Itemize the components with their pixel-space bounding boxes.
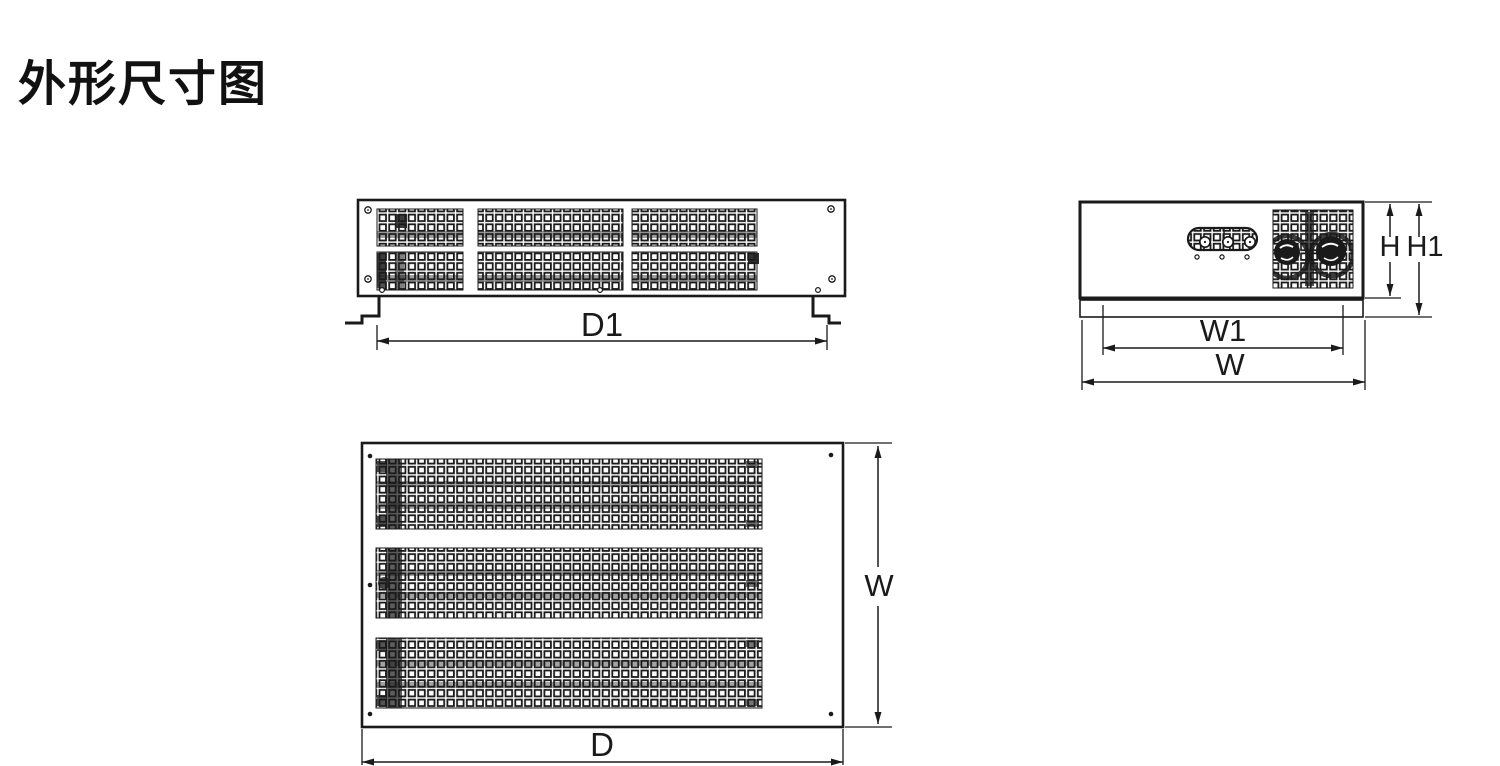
grille-panel <box>377 252 463 290</box>
grille-strip <box>376 459 762 529</box>
dim-label-w-side: W <box>1215 347 1245 382</box>
top-view: W D <box>362 443 894 765</box>
fan-rotor-icon <box>1316 236 1346 266</box>
grille-panel <box>478 209 623 246</box>
grille-panel <box>478 252 623 290</box>
mounting-foot-left <box>345 297 379 323</box>
dim-label-w-top: W <box>864 568 894 603</box>
grille-panel <box>377 209 463 246</box>
grille-panel <box>632 209 757 246</box>
screw-icon <box>1195 255 1199 259</box>
front-view: D1 <box>345 200 845 350</box>
screw-icon <box>380 288 385 293</box>
dim-label-w1: W1 <box>1200 313 1247 348</box>
screw-icon <box>368 712 373 717</box>
screw-icon <box>829 276 835 282</box>
screw-icon <box>598 288 603 293</box>
screw-icon <box>368 454 373 459</box>
screw-icon <box>829 712 834 717</box>
drawing-canvas: D1 <box>0 0 1500 766</box>
dim-label-h: H <box>1380 231 1401 263</box>
dim-d1: D1 <box>377 306 827 350</box>
dim-label-d: D <box>590 726 614 763</box>
screw-icon <box>1220 255 1224 259</box>
screw-icon <box>365 276 371 282</box>
dim-h-h1: H H1 <box>1365 202 1444 317</box>
terminal-hole <box>1200 237 1210 247</box>
screw-icon <box>829 453 834 458</box>
screw-icon <box>365 207 371 213</box>
screw-icon <box>1245 255 1249 259</box>
dim-label-h1: H1 <box>1406 231 1443 263</box>
screw-icon <box>368 583 373 588</box>
terminal-hole <box>1245 237 1255 247</box>
top-view-grilles <box>376 459 762 708</box>
mounting-foot-right <box>813 297 841 323</box>
dimension-drawing-page: { "title": "外形尺寸图", "labels": { "d1": "D… <box>0 0 1500 766</box>
screw-icon <box>828 206 834 212</box>
fan-rotor-icon <box>1274 239 1300 265</box>
side-view: H H1 W1 W <box>1080 202 1444 390</box>
dim-w-top: W <box>845 443 894 727</box>
grille-strip <box>376 548 762 618</box>
dim-label-d1: D1 <box>581 306 623 343</box>
fan-grille <box>1266 210 1353 288</box>
grille-panel <box>632 252 757 290</box>
terminal-hole <box>1223 237 1233 247</box>
screw-icon <box>816 288 821 293</box>
dim-d: D <box>362 726 843 765</box>
grille-strip <box>376 638 762 708</box>
